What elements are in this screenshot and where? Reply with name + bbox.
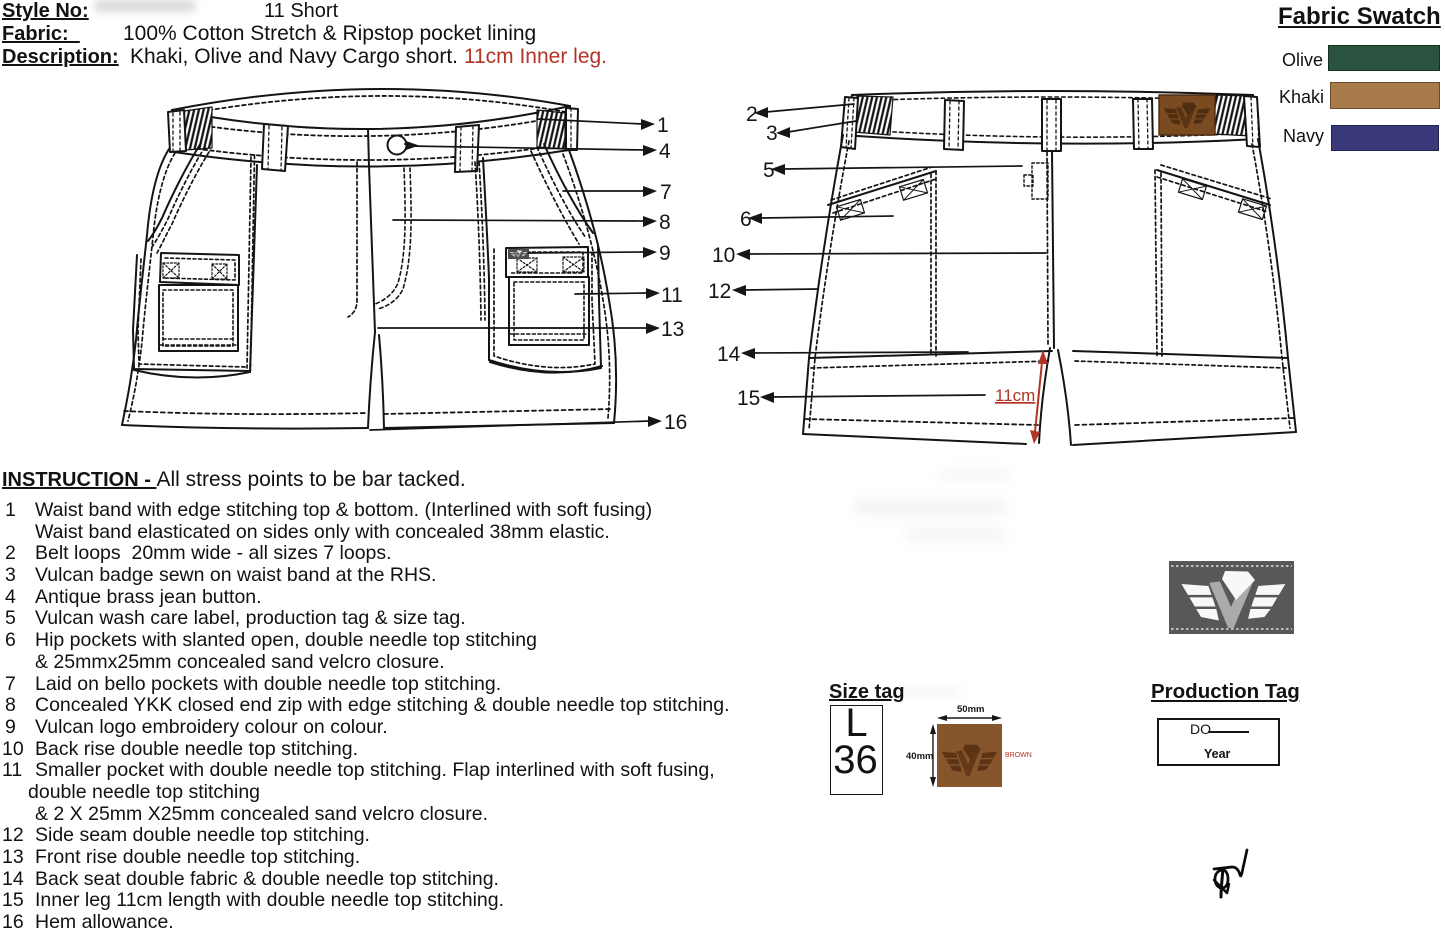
svg-text:50mm: 50mm [957, 704, 984, 715]
svg-text:5: 5 [763, 159, 775, 182]
svg-text:8: 8 [659, 211, 671, 234]
svg-text:6: 6 [740, 208, 752, 231]
svg-text:11cm: 11cm [995, 386, 1035, 405]
svg-text:11: 11 [661, 284, 683, 307]
svg-text:10: 10 [712, 244, 735, 267]
svg-text:2: 2 [746, 103, 758, 126]
svg-text:16: 16 [664, 411, 687, 434]
svg-text:3: 3 [766, 122, 778, 145]
svg-text:13: 13 [661, 318, 684, 341]
svg-text:40mm: 40mm [906, 751, 933, 762]
svg-text:15: 15 [737, 387, 760, 410]
svg-text:7: 7 [660, 181, 672, 204]
svg-text:14: 14 [717, 343, 741, 366]
svg-text:BROWN: BROWN [1005, 752, 1032, 759]
svg-text:12: 12 [708, 280, 731, 303]
svg-text:1: 1 [657, 114, 669, 137]
svg-text:4: 4 [659, 140, 671, 163]
svg-text:9: 9 [659, 242, 671, 265]
